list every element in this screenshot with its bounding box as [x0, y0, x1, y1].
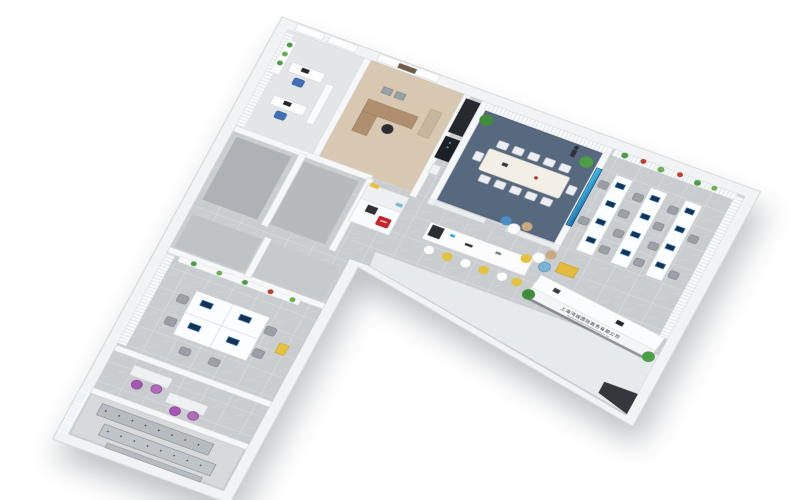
- building-3d-plan: 上海鸿城国际商务有限公司 Shanghai Hongcheng Internat…: [42, 8, 771, 500]
- floorplan-canvas: 上海鸿城国际商务有限公司 Shanghai Hongcheng Internat…: [0, 0, 800, 500]
- floorplan-svg: 上海鸿城国际商务有限公司 Shanghai Hongcheng Internat…: [42, 8, 771, 500]
